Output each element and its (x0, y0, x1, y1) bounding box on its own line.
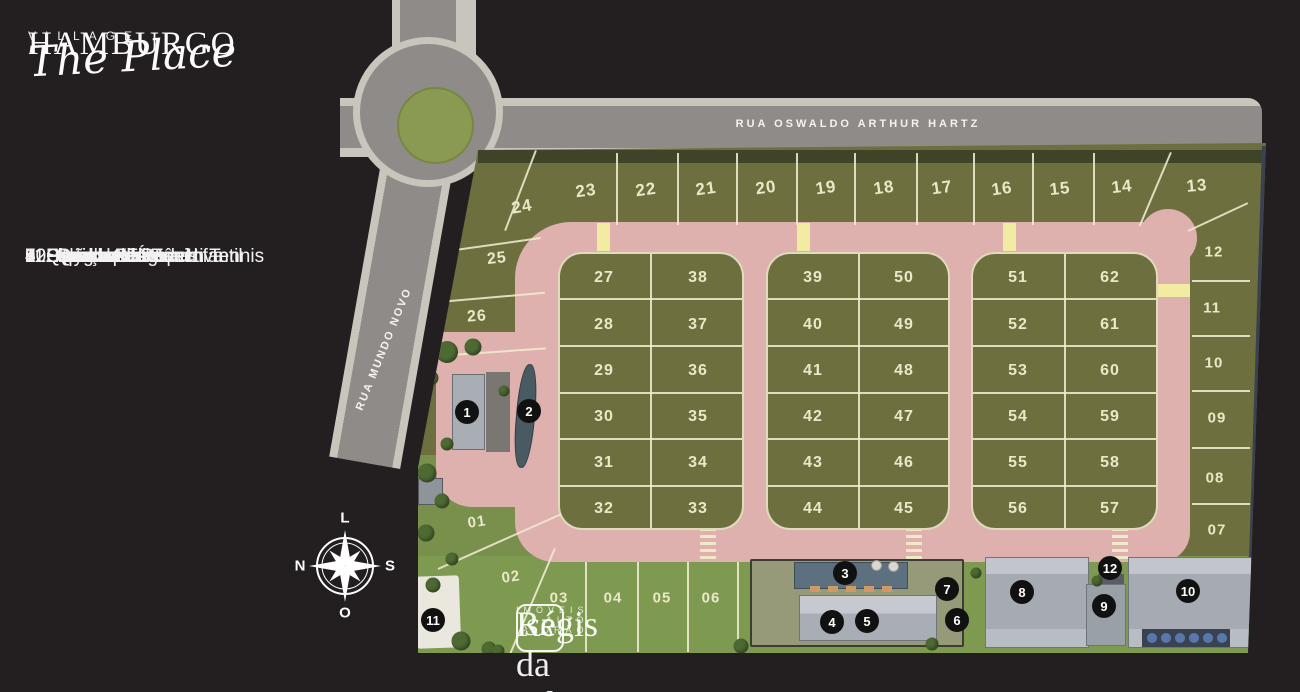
lot-label: 39 (803, 269, 823, 287)
tree (418, 525, 435, 542)
roundabout-island (397, 87, 474, 164)
lot-divider (687, 562, 689, 652)
lot-divider (796, 153, 798, 225)
lot-label: 15 (1049, 178, 1072, 200)
lot-divider (1192, 280, 1250, 282)
lot-label: 40 (803, 316, 823, 334)
lot-label: 01 (467, 512, 488, 531)
lot-divider (916, 153, 918, 225)
marker-piscina: 3 (833, 561, 857, 585)
crosswalk-mark (1003, 223, 1016, 251)
lot-label: 21 (694, 178, 718, 201)
lot-label: 46 (894, 454, 914, 472)
compass-letter-north: N (295, 558, 306, 575)
lot-label: 34 (688, 454, 708, 472)
pool-lounger (882, 586, 892, 592)
lot-label: 31 (594, 454, 614, 472)
lot-divider (616, 153, 618, 225)
compass-letter-south: S (385, 558, 395, 575)
tree (1092, 576, 1103, 587)
lot-label: 45 (894, 500, 914, 518)
tree (465, 339, 482, 356)
seat (1217, 633, 1227, 643)
pool-lounger (864, 586, 874, 592)
lot-label: 32 (594, 500, 614, 518)
lot-label: 14 (1111, 176, 1134, 198)
brand-script: The Place (27, 27, 238, 87)
lot-label: 59 (1100, 408, 1120, 426)
lot-label: 16 (990, 178, 1014, 201)
lot-label: 54 (1008, 408, 1028, 426)
lot-label: 11 (1203, 300, 1221, 317)
compass-rose-icon (303, 524, 387, 608)
lot-divider (1192, 447, 1250, 449)
lot-label: 48 (894, 362, 914, 380)
tree (426, 578, 441, 593)
realtor-tagline: IMÓVEIS ALTO PADRÃO (516, 605, 589, 635)
lot-label: 42 (803, 408, 823, 426)
lot-label: 58 (1100, 454, 1120, 472)
marker-quadra-de-tenis: 10 (1176, 579, 1200, 603)
lot-label: 61 (1100, 316, 1120, 334)
lot-label: 56 (1008, 500, 1028, 518)
lot-label: 12 (1205, 244, 1224, 261)
gate-lane (486, 372, 510, 452)
lot-divider (1192, 390, 1250, 392)
tree (441, 438, 454, 451)
tree (926, 638, 939, 651)
lot-label: 49 (894, 316, 914, 334)
tree (436, 341, 458, 363)
lot-divider (650, 254, 652, 528)
compass-letter-east: L (340, 510, 349, 527)
lot-divider (637, 562, 639, 652)
lot-label: 20 (754, 177, 778, 200)
lot-label: 55 (1008, 454, 1028, 472)
marker-espaco-kids: 6 (945, 608, 969, 632)
marker-fitness-center: 4 (820, 610, 844, 634)
lot-label: 41 (803, 362, 823, 380)
multisport-court-building (985, 557, 1089, 648)
lot-label: 57 (1100, 500, 1120, 518)
lot-label: 02 (501, 567, 522, 586)
lot-label: 18 (872, 177, 896, 200)
zebra-crossing (700, 528, 716, 560)
seat (1189, 633, 1199, 643)
lot-label: 33 (688, 500, 708, 518)
lot-divider (854, 153, 856, 225)
lot-label: 50 (894, 269, 914, 287)
umbrella (888, 561, 899, 572)
lot-label: 47 (894, 408, 914, 426)
seat (1203, 633, 1213, 643)
lot-divider (1192, 503, 1250, 505)
lot-label: 24 (510, 195, 534, 218)
tree (446, 553, 459, 566)
lot-label: 35 (688, 408, 708, 426)
lot-label: 09 (1208, 410, 1227, 427)
marker-quadra-poliesportiva: 8 (1010, 580, 1034, 604)
tree (971, 568, 982, 579)
street-hedge (478, 150, 1266, 163)
lot-label: 30 (594, 408, 614, 426)
umbrella (871, 560, 882, 571)
lot-label: 53 (1008, 362, 1028, 380)
lot-label: 19 (814, 177, 838, 200)
pool-lounger (828, 586, 838, 592)
lot-divider (1064, 254, 1066, 528)
seat (1147, 633, 1157, 643)
tree (499, 386, 510, 397)
tree (492, 645, 505, 658)
lot-label: 17 (930, 177, 954, 200)
lot-divider (1093, 153, 1095, 225)
compass-letter-west: O (339, 605, 351, 622)
lot-label: 08 (1206, 470, 1225, 487)
lot-label: 13 (1186, 175, 1209, 197)
marker-playground: 7 (935, 577, 959, 601)
lot-divider (736, 153, 738, 225)
lot-label: 07 (1208, 522, 1227, 539)
lot-label: 26 (466, 307, 487, 326)
lot-divider (1032, 153, 1034, 225)
lot-label: 29 (594, 362, 614, 380)
tree (418, 464, 437, 483)
lot-divider (858, 254, 860, 528)
crosswalk-mark (1158, 284, 1190, 297)
lot-label: 60 (1100, 362, 1120, 380)
crosswalk-mark (597, 223, 610, 251)
lot-label: 36 (688, 362, 708, 380)
pool-lounger (846, 586, 856, 592)
main-street-name: RUA OSWALDO ARTHUR HARTZ (736, 118, 981, 130)
marker-beach-tennis: 11 (421, 608, 445, 632)
crosswalk-mark (797, 223, 810, 251)
marker-salao-de-festas: 5 (855, 609, 879, 633)
lot-label: 23 (574, 180, 598, 203)
lot-divider (677, 153, 679, 225)
lot-label: 52 (1008, 316, 1028, 334)
lot-divider (1192, 335, 1250, 337)
lot-label: 43 (803, 454, 823, 472)
lot-label: 06 (702, 590, 721, 607)
legend-item: 12. Quiosque (25, 240, 138, 273)
tree (424, 371, 439, 386)
tree (734, 639, 749, 654)
marker-portaria: 1 (455, 400, 479, 424)
lot-label: 22 (634, 179, 658, 202)
lot-label: 38 (688, 269, 708, 287)
pool-lounger (810, 586, 820, 592)
seat (1175, 633, 1185, 643)
marker-quadra-de-padel: 9 (1092, 594, 1116, 618)
marker-quiosque: 12 (1098, 556, 1122, 580)
lot-divider (973, 153, 975, 225)
lot-label: 25 (486, 249, 508, 269)
lot-label: 62 (1100, 269, 1120, 287)
lot-label: 05 (653, 590, 672, 607)
lot-label: 28 (594, 316, 614, 334)
zebra-crossing (906, 528, 922, 560)
tree (452, 632, 471, 651)
tree (435, 494, 450, 509)
marker-espelho-dagua: 2 (517, 399, 541, 423)
zebra-crossing (1112, 528, 1128, 560)
site-plan-canvas: HAMBURGO VILLAGE The Place 1. Portaria 2… (0, 0, 1300, 692)
lot-label: 10 (1205, 355, 1224, 372)
lot-label: 37 (688, 316, 708, 334)
lot-label: 51 (1008, 269, 1028, 287)
lot-label: 44 (803, 500, 823, 518)
seat (1161, 633, 1171, 643)
lot-label: 27 (594, 269, 614, 287)
